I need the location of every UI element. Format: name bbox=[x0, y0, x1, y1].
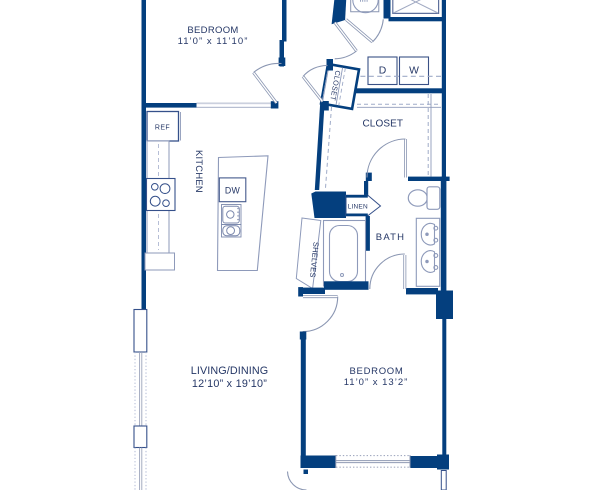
svg-text:11’0” x 13’2”: 11’0” x 13’2” bbox=[344, 377, 409, 388]
svg-text:REF: REF bbox=[155, 125, 170, 132]
svg-text:LINEN: LINEN bbox=[348, 204, 368, 211]
svg-text:CLOSET: CLOSET bbox=[362, 119, 403, 130]
svg-text:12’10” x 19’10”: 12’10” x 19’10” bbox=[192, 378, 267, 390]
svg-text:BEDROOM: BEDROOM bbox=[350, 366, 404, 377]
svg-text:D: D bbox=[379, 66, 387, 77]
svg-text:W: W bbox=[409, 66, 419, 77]
svg-text:DW: DW bbox=[225, 185, 241, 195]
svg-text:LIVING/DINING: LIVING/DINING bbox=[191, 365, 269, 377]
svg-text:BATH: BATH bbox=[376, 232, 405, 243]
svg-text:KITCHEN: KITCHEN bbox=[194, 150, 204, 193]
svg-text:BEDROOM: BEDROOM bbox=[187, 25, 238, 36]
svg-text:11’0” x 11’10”: 11’0” x 11’10” bbox=[178, 36, 249, 47]
